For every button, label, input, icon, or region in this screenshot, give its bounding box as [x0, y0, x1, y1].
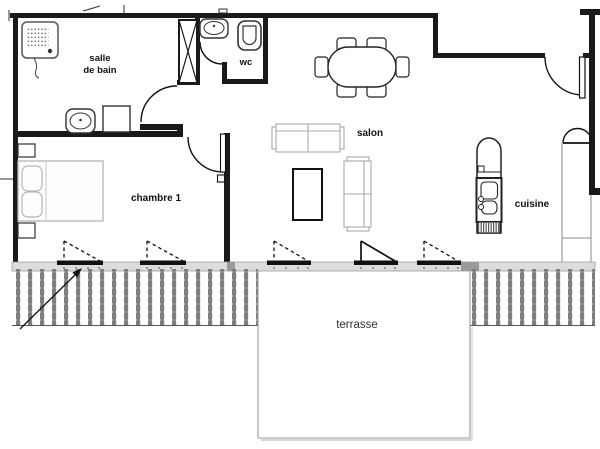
wall-entry-left — [433, 53, 545, 58]
wall-notch — [219, 9, 227, 13]
sink-basin — [481, 182, 498, 199]
bathroom-sink — [66, 109, 95, 133]
pillow — [22, 166, 42, 191]
room-label-bathroom-line2: de bain — [83, 65, 116, 76]
dining-chair — [315, 57, 328, 77]
wall-wc-left-stub — [222, 62, 227, 84]
terrace-door-sill — [354, 261, 398, 266]
kitchen-arch — [563, 129, 592, 144]
shower-drain-line — [34, 58, 39, 78]
wall-hall-bottom — [140, 124, 183, 130]
window-sill — [267, 261, 311, 266]
wall-top-jog — [433, 13, 438, 58]
dining-table — [328, 47, 396, 87]
wc-hand-basin — [200, 19, 228, 38]
entrance-door-leaf — [580, 57, 586, 98]
stove-grill — [479, 223, 499, 232]
wc-door-arc — [200, 42, 222, 64]
tick-mark — [83, 6, 100, 11]
window-sill — [417, 261, 461, 266]
wall-top — [10, 13, 437, 18]
window-opening-symbol — [274, 241, 308, 261]
sofa-right — [344, 157, 371, 231]
door-stop — [218, 175, 225, 182]
window-opening-symbol — [64, 241, 100, 261]
nightstand — [18, 144, 35, 157]
faucet — [479, 205, 484, 210]
faucet — [479, 197, 484, 202]
room-label-terrace: terrasse — [336, 319, 378, 331]
bedroom-door-leaf — [221, 134, 226, 172]
bed — [18, 161, 103, 221]
kitchen-unit — [477, 138, 502, 233]
kitchen-detail — [478, 166, 484, 172]
pillow — [22, 192, 42, 217]
coffee-table — [293, 169, 322, 220]
kitchen-boundary-lines — [562, 143, 591, 262]
washing-machine — [103, 106, 130, 132]
terrace — [12, 269, 595, 440]
window-sill — [57, 261, 103, 266]
wall-wc-bottom — [222, 79, 268, 84]
duct-column — [179, 20, 197, 83]
wall-bedroom-top — [18, 131, 183, 137]
terrace-door-opening-symbol — [361, 241, 395, 261]
floor-plan-drawing: salle de bain wc salon chambre 1 cuisine… — [0, 0, 600, 449]
floor-plan: salle de bain wc salon chambre 1 cuisine… — [0, 0, 600, 449]
dining-set — [315, 38, 409, 97]
window-sill — [140, 261, 186, 266]
room-label-wc: wc — [239, 57, 253, 68]
room-label-bathroom-line1: salle — [89, 53, 110, 64]
window-opening-symbol — [424, 241, 458, 261]
wall-right — [589, 9, 595, 195]
sofa-top — [272, 124, 344, 152]
bathroom-door-arc — [141, 86, 177, 122]
shower — [22, 22, 58, 78]
room-label-living: salon — [357, 128, 383, 139]
dining-chair — [396, 57, 409, 77]
room-label-kitchen: cuisine — [515, 199, 550, 210]
window-opening-symbol — [147, 241, 183, 261]
wall-wc-right — [263, 18, 268, 84]
wall-hall-connector — [177, 124, 183, 137]
terrace-outline — [258, 271, 470, 438]
toilet — [238, 21, 261, 50]
bedroom-door-arc — [188, 137, 223, 172]
terrace-railing-right — [470, 269, 595, 326]
nightstand — [18, 223, 35, 238]
terrace-railing-left — [12, 269, 258, 326]
entrance-door-arc — [545, 57, 583, 95]
wall-left — [13, 13, 18, 262]
room-label-bedroom: chambre 1 — [131, 193, 181, 204]
wall-right-corner — [589, 188, 600, 195]
